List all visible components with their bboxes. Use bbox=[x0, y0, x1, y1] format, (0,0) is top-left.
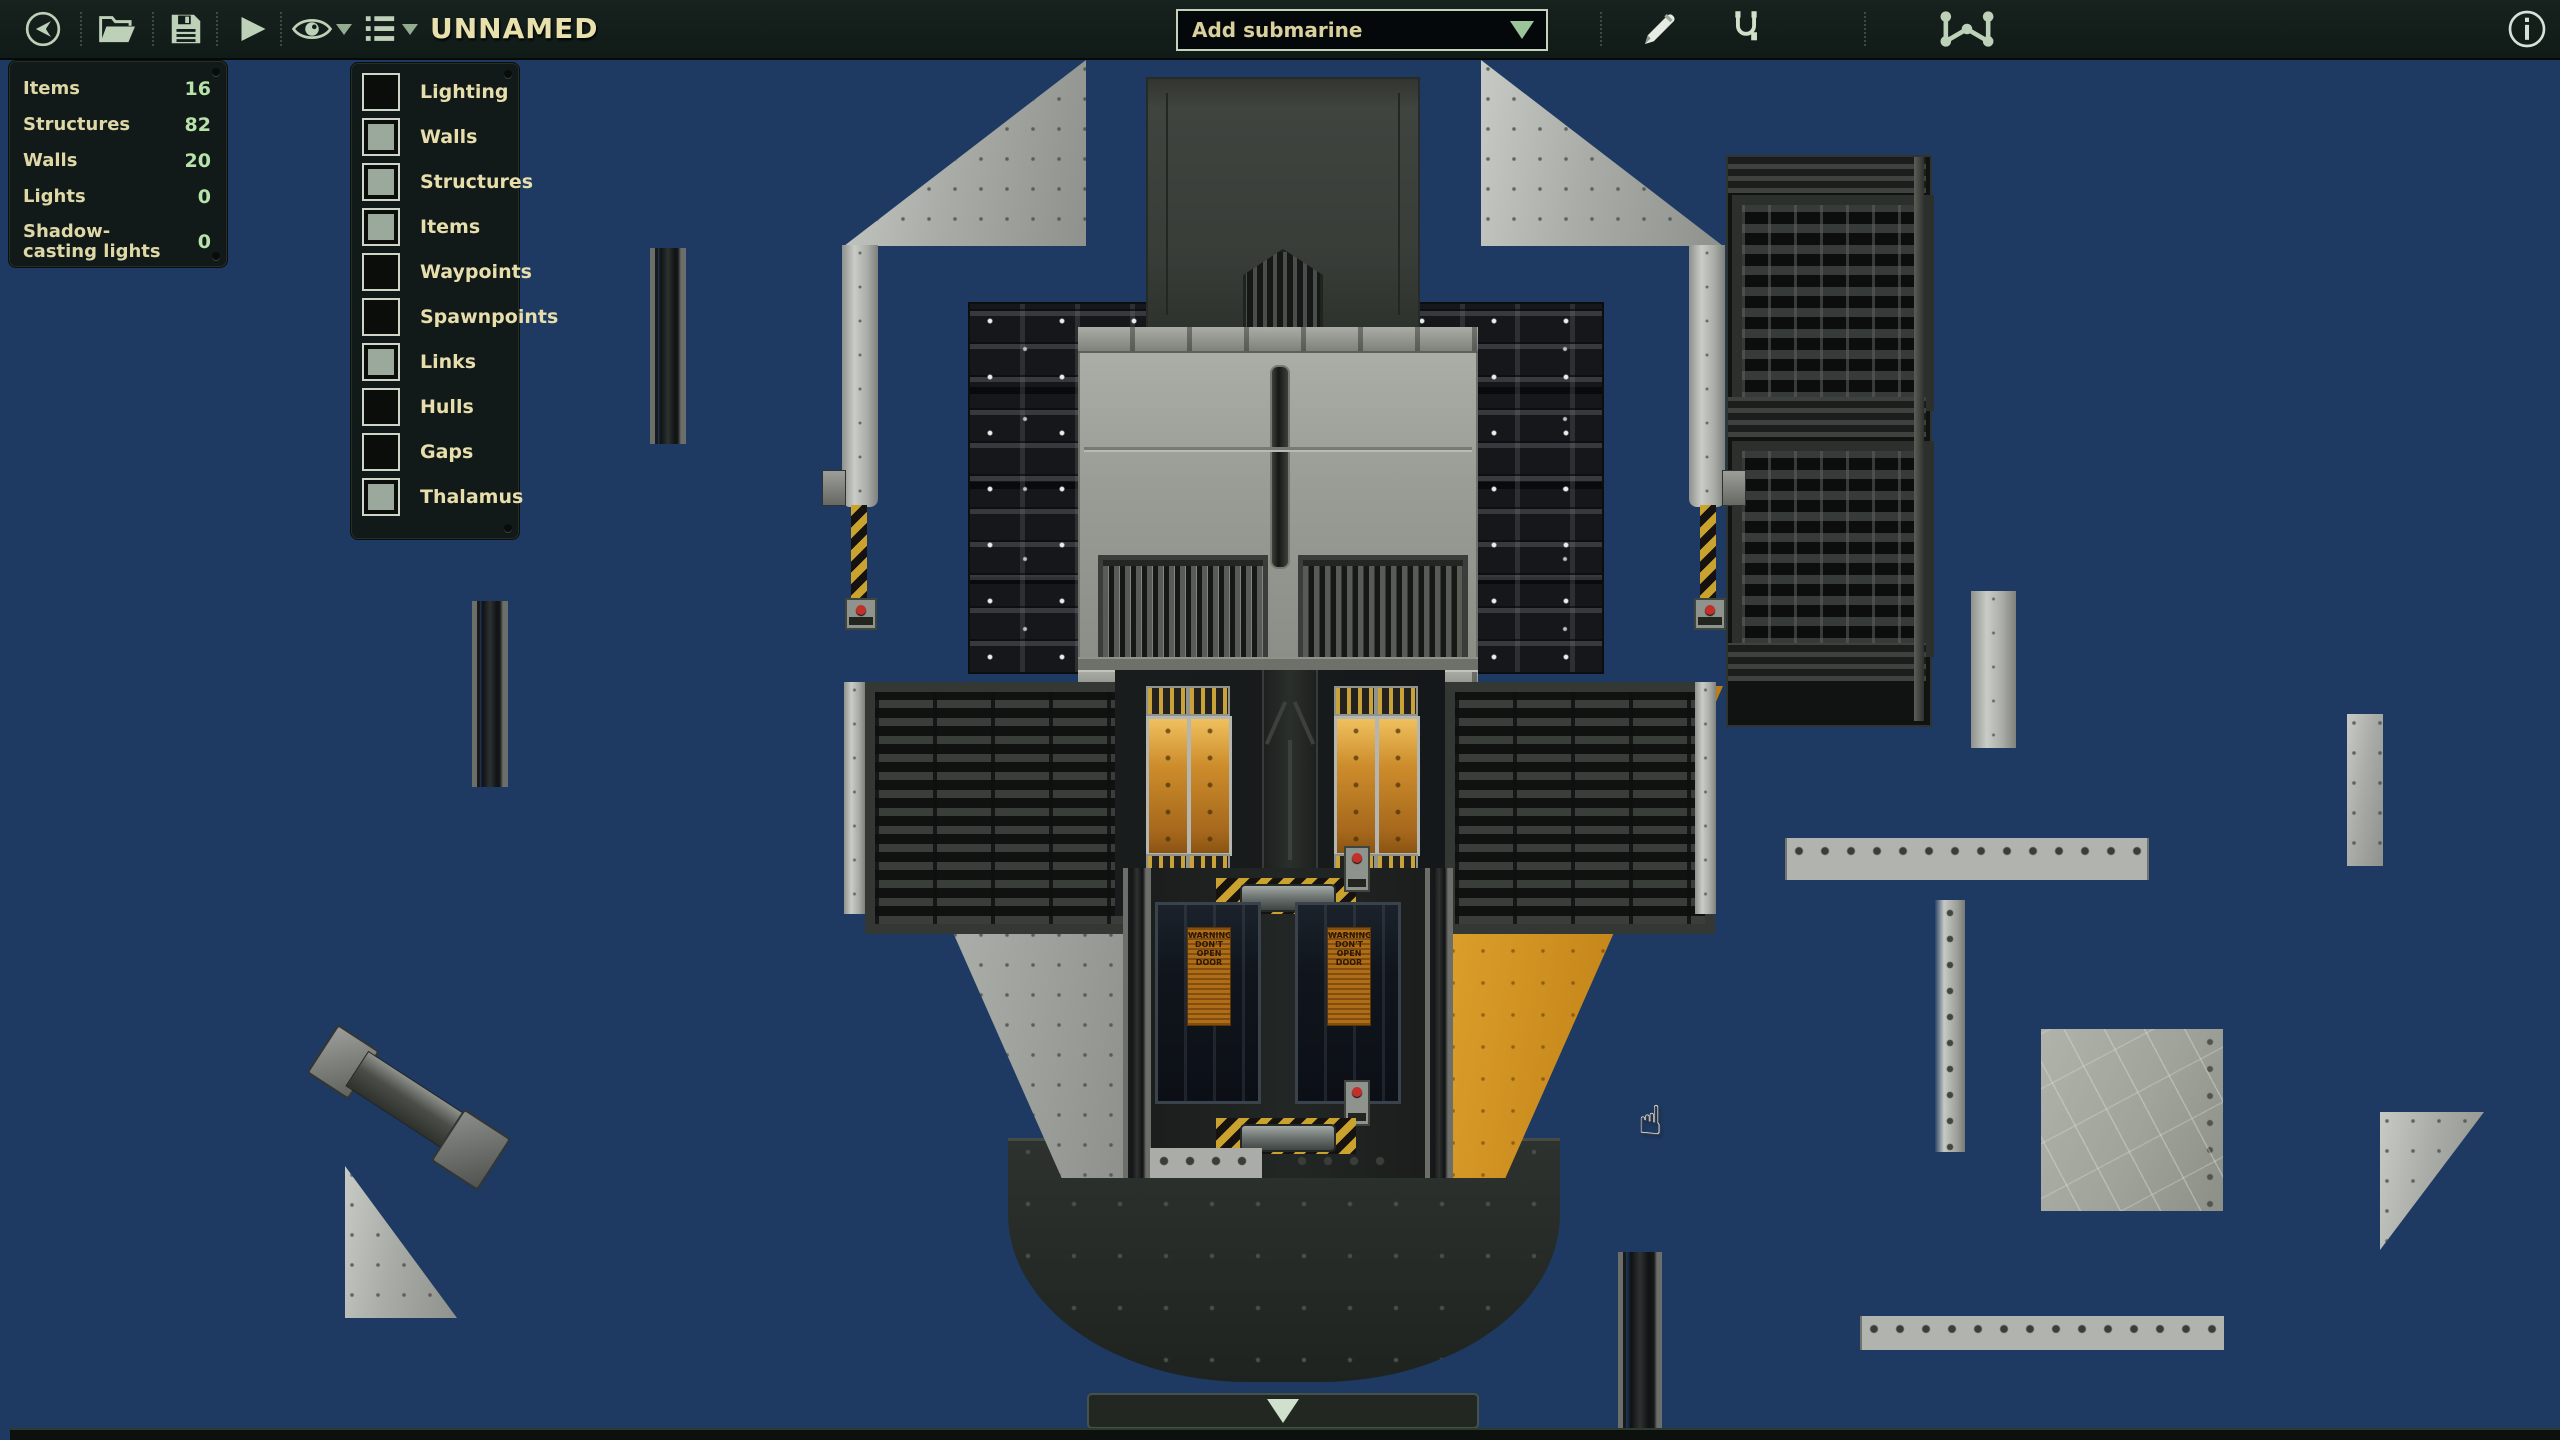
chevron-down-icon bbox=[402, 24, 418, 35]
layer-row: Links bbox=[351, 339, 519, 384]
y-groove bbox=[1265, 701, 1287, 745]
stat-label: Items bbox=[23, 79, 80, 99]
layer-row: Structures bbox=[351, 159, 519, 204]
stat-value: 0 bbox=[198, 231, 211, 253]
stat-value: 16 bbox=[185, 78, 211, 100]
add-submarine-dropdown[interactable]: Add submarine bbox=[1176, 9, 1548, 51]
wing-cap-right bbox=[1695, 682, 1716, 914]
layer-checkbox[interactable] bbox=[362, 208, 400, 246]
chevron-down-icon bbox=[1267, 1399, 1299, 1423]
toolbar-divider bbox=[1600, 12, 1602, 46]
hull-plate-center[interactable] bbox=[1078, 327, 1478, 670]
door-right[interactable]: WARNING DON'T OPEN DOOR bbox=[1295, 902, 1401, 1104]
bottom-edge-strip bbox=[10, 1428, 2560, 1440]
layer-checkbox[interactable] bbox=[362, 433, 400, 471]
back-button[interactable] bbox=[20, 10, 66, 48]
save-button[interactable] bbox=[162, 10, 210, 48]
pipe-band bbox=[1728, 157, 1926, 193]
layer-label: Structures bbox=[420, 171, 533, 193]
machinery-panel-right[interactable] bbox=[1726, 155, 1932, 727]
layer-label: Thalamus bbox=[420, 486, 523, 508]
layer-row: Lighting bbox=[351, 69, 519, 114]
layer-checkbox[interactable] bbox=[362, 388, 400, 426]
signal-connector[interactable] bbox=[1344, 846, 1370, 892]
pole-connector-left bbox=[845, 598, 877, 630]
visibility-menu-button[interactable] bbox=[292, 10, 332, 48]
wiring-mode-button[interactable] bbox=[1716, 10, 1776, 48]
warning-poster: WARNING DON'T OPEN DOOR bbox=[1327, 927, 1371, 1026]
toolbar-divider bbox=[152, 12, 154, 46]
panel-rail bbox=[1914, 157, 1924, 721]
canvas-corner-notch bbox=[0, 1424, 10, 1440]
hazard-pole-right[interactable] bbox=[1700, 505, 1716, 601]
door-left[interactable]: WARNING DON'T OPEN DOOR bbox=[1155, 902, 1261, 1104]
grille-section bbox=[1732, 441, 1934, 657]
tower-structure[interactable] bbox=[1146, 77, 1420, 331]
stat-value: 20 bbox=[185, 150, 211, 172]
toolbar-divider bbox=[280, 12, 282, 46]
toolbar-divider bbox=[216, 12, 218, 46]
stats-rows: Items 16 Structures 82 Walls 20 Lights 0… bbox=[9, 71, 227, 269]
battery-cell[interactable] bbox=[1146, 716, 1190, 856]
riveted-strip-piece[interactable] bbox=[1935, 900, 1965, 1152]
open-file-button[interactable] bbox=[92, 10, 142, 48]
layer-rows: Lighting Walls Structures Items Waypoint… bbox=[351, 69, 519, 519]
submarine-name-title: UNNAMED bbox=[430, 0, 599, 58]
corridor-rail-right bbox=[1425, 868, 1453, 1178]
add-submarine-label: Add submarine bbox=[1192, 18, 1510, 42]
circle-arrow-left-icon bbox=[24, 10, 62, 48]
layer-row: Spawnpoints bbox=[351, 294, 519, 339]
battery-connector-top bbox=[1334, 686, 1376, 716]
wing-cap-left bbox=[844, 682, 865, 914]
y-groove bbox=[1293, 701, 1315, 745]
chevron-down-icon bbox=[1510, 21, 1534, 39]
tower-hatch[interactable] bbox=[1243, 249, 1323, 331]
toolbar-divider bbox=[80, 12, 82, 46]
hull-triangle-top-left[interactable] bbox=[844, 60, 1086, 246]
layer-checkbox[interactable] bbox=[362, 73, 400, 111]
layer-visibility-panel: Lighting Walls Structures Items Waypoint… bbox=[350, 62, 520, 540]
stat-label: Shadow-casting lights bbox=[23, 222, 173, 262]
plate-ridge bbox=[1084, 447, 1472, 450]
wall-piece-vertical[interactable] bbox=[650, 248, 686, 444]
corridor-section[interactable]: WARNING DON'T OPEN DOOR WARNING DON'T OP… bbox=[1123, 868, 1453, 1178]
tower-groove bbox=[1166, 93, 1168, 315]
folder-open-icon bbox=[97, 11, 137, 47]
beam-piece-horizontal[interactable] bbox=[1785, 838, 2149, 880]
vent-grille[interactable] bbox=[1098, 555, 1268, 665]
hull-column-left[interactable] bbox=[842, 245, 878, 507]
plate-header-tabs bbox=[1078, 327, 1478, 353]
scratched-panel-piece[interactable] bbox=[2041, 1029, 2223, 1211]
collapse-panel-bar[interactable] bbox=[1087, 1393, 1479, 1429]
play-icon bbox=[234, 11, 270, 47]
play-test-button[interactable] bbox=[230, 10, 274, 48]
wing-grille-right[interactable] bbox=[1445, 682, 1715, 934]
submarine-editor: WARNING DON'T OPEN DOOR WARNING DON'T OP… bbox=[0, 0, 2560, 1440]
warning-poster-text: WARNING DON'T OPEN DOOR bbox=[1188, 931, 1231, 967]
layer-row: Thalamus bbox=[351, 474, 519, 519]
waypoint-nodes-icon bbox=[1937, 9, 1997, 49]
column-nub-left bbox=[822, 470, 846, 506]
pole-connector-right bbox=[1694, 598, 1726, 630]
plate-slot bbox=[1270, 365, 1290, 569]
hull-column-right[interactable] bbox=[1689, 245, 1725, 507]
eye-icon bbox=[292, 14, 332, 44]
battery-connector-top bbox=[1376, 686, 1418, 716]
hazard-pole-left[interactable] bbox=[851, 505, 867, 601]
layer-row: Hulls bbox=[351, 384, 519, 429]
battery-cell[interactable] bbox=[1188, 716, 1232, 856]
keel-plate-right[interactable] bbox=[1288, 1148, 1400, 1212]
grille-section bbox=[1732, 195, 1934, 411]
info-circle-icon bbox=[2507, 9, 2547, 49]
layer-checkbox[interactable] bbox=[362, 478, 400, 516]
stat-row: Walls 20 bbox=[9, 143, 227, 179]
plate-bottom-band bbox=[1078, 657, 1478, 670]
stat-row: Structures 82 bbox=[9, 107, 227, 143]
visibility-caret-button[interactable] bbox=[336, 24, 352, 35]
warning-poster-text: WARNING DON'T OPEN DOOR bbox=[1328, 931, 1371, 967]
layer-label: Gaps bbox=[420, 441, 473, 463]
pipe-band bbox=[1728, 397, 1926, 437]
stat-row: Items 16 bbox=[9, 71, 227, 107]
layer-label: Items bbox=[420, 216, 480, 238]
wire-icon bbox=[1725, 9, 1767, 49]
stat-label: Walls bbox=[23, 151, 77, 171]
layer-checkbox[interactable] bbox=[362, 298, 400, 336]
entity-list-button[interactable] bbox=[360, 10, 400, 48]
column-piece[interactable] bbox=[1971, 591, 2016, 748]
y-groove bbox=[1288, 740, 1292, 860]
layer-checkbox[interactable] bbox=[362, 118, 400, 156]
stat-row: Shadow-casting lights 0 bbox=[9, 215, 227, 269]
warning-poster: WARNING DON'T OPEN DOOR bbox=[1187, 927, 1231, 1026]
pencil-icon bbox=[1640, 9, 1680, 49]
hull-triangle-piece[interactable] bbox=[2380, 1112, 2484, 1250]
battery-cell[interactable] bbox=[1376, 716, 1420, 856]
stat-row: Lights 0 bbox=[9, 179, 227, 215]
battery-cell[interactable] bbox=[1334, 716, 1378, 856]
keel-plate-left[interactable] bbox=[1150, 1148, 1262, 1212]
vent-grille[interactable] bbox=[1298, 555, 1468, 665]
layer-label: Hulls bbox=[420, 396, 474, 418]
battery-connector-top bbox=[1146, 686, 1188, 716]
floppy-disk-icon bbox=[167, 10, 205, 48]
layer-checkbox[interactable] bbox=[362, 253, 400, 291]
layer-row: Walls bbox=[351, 114, 519, 159]
wing-grille-left[interactable] bbox=[865, 682, 1135, 934]
battery-connector-top bbox=[1188, 686, 1230, 716]
wall-piece-vertical[interactable] bbox=[1618, 1252, 1662, 1430]
waypoints-button[interactable] bbox=[1925, 10, 2009, 48]
column-piece[interactable] bbox=[2347, 714, 2383, 866]
tower-groove bbox=[1398, 93, 1400, 315]
info-button[interactable] bbox=[2504, 10, 2550, 48]
layer-label: Lighting bbox=[420, 81, 508, 103]
hull-triangle-top-right[interactable] bbox=[1481, 60, 1723, 246]
hand-cursor-icon: ☝ bbox=[1638, 1098, 1662, 1144]
stat-label: Structures bbox=[23, 115, 130, 135]
entity-list-caret-button[interactable] bbox=[402, 24, 418, 35]
stat-value: 0 bbox=[198, 186, 211, 208]
list-icon bbox=[362, 12, 398, 46]
chevron-down-icon bbox=[336, 24, 352, 35]
layer-label: Links bbox=[420, 351, 476, 373]
stat-value: 82 bbox=[185, 114, 211, 136]
layer-row: Gaps bbox=[351, 429, 519, 474]
pipe-band bbox=[1728, 643, 1926, 681]
stat-label: Lights bbox=[23, 187, 86, 207]
layer-label: Walls bbox=[420, 126, 477, 148]
duct-piece[interactable] bbox=[273, 1024, 506, 1234]
layer-label: Spawnpoints bbox=[420, 306, 558, 328]
layer-checkbox[interactable] bbox=[362, 163, 400, 201]
corridor-rail-left bbox=[1123, 868, 1151, 1178]
top-toolbar: UNNAMED Add submarine bbox=[0, 0, 2560, 60]
edit-mode-button[interactable] bbox=[1630, 10, 1690, 48]
wall-piece-vertical[interactable] bbox=[472, 601, 508, 787]
layer-checkbox[interactable] bbox=[362, 343, 400, 381]
toolbar-divider bbox=[1864, 12, 1866, 46]
layer-row: Items bbox=[351, 204, 519, 249]
column-nub-right bbox=[1722, 470, 1746, 506]
layer-row: Waypoints bbox=[351, 249, 519, 294]
layer-label: Waypoints bbox=[420, 261, 532, 283]
beam-piece-horizontal[interactable] bbox=[1860, 1316, 2224, 1350]
stats-panel: Items 16 Structures 82 Walls 20 Lights 0… bbox=[8, 60, 228, 268]
